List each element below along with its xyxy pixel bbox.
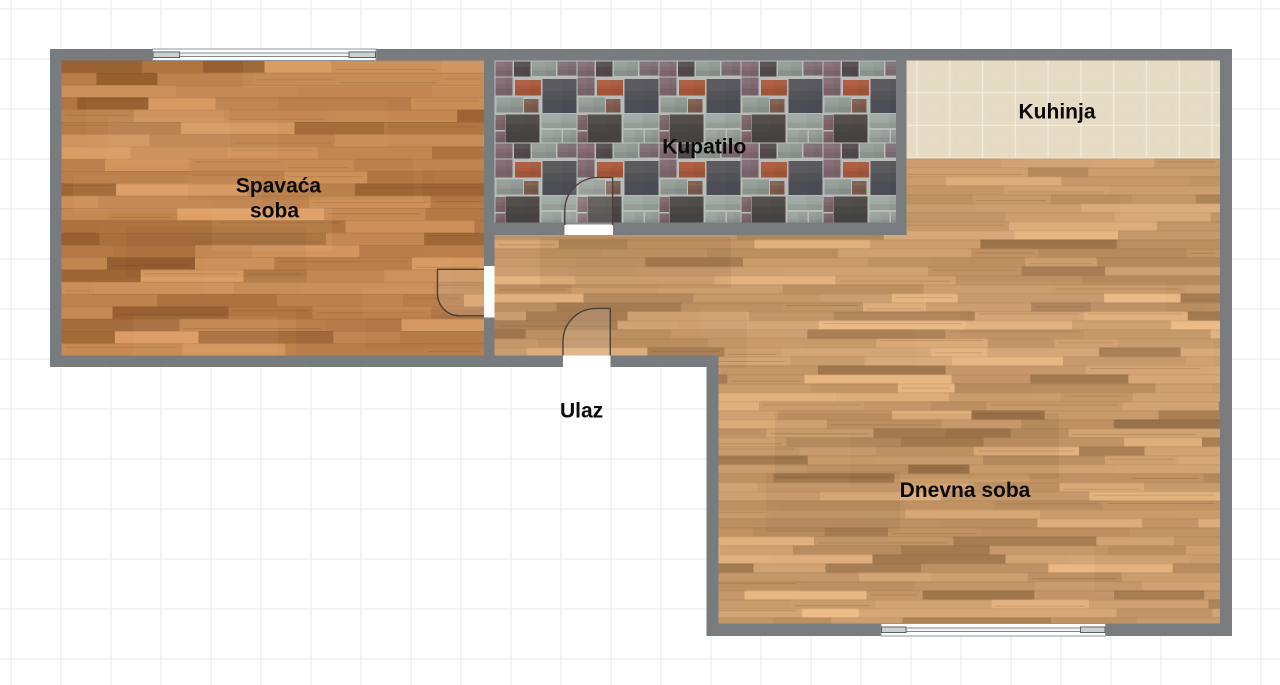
svg-text:Kupatilo: Kupatilo xyxy=(662,136,746,159)
svg-text:Ulaz: Ulaz xyxy=(560,400,603,423)
svg-text:Dnevna soba: Dnevna soba xyxy=(900,479,1031,502)
svg-text:Spavaća: Spavaća xyxy=(236,175,322,198)
svg-text:Kuhinja: Kuhinja xyxy=(1019,101,1096,124)
svg-text:soba: soba xyxy=(250,200,299,223)
